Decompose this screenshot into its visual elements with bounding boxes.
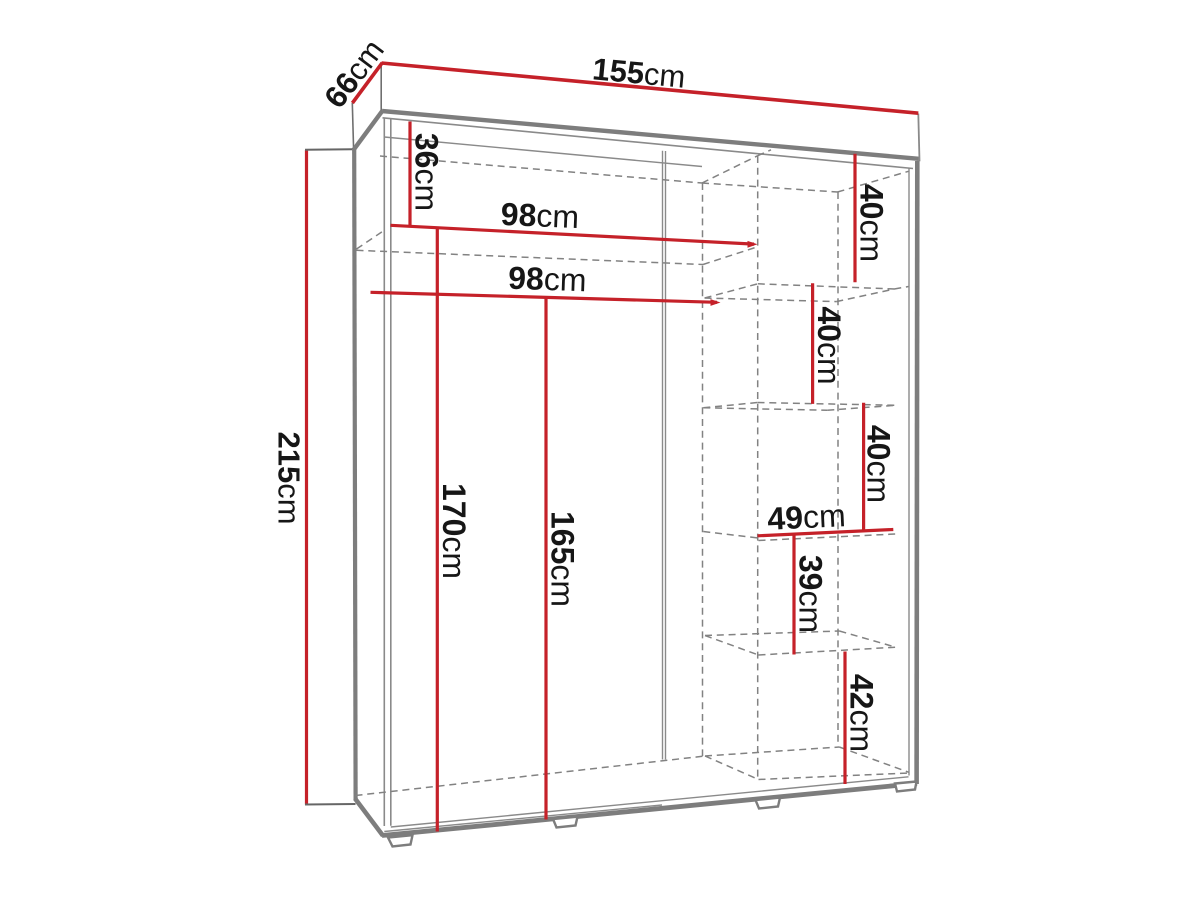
- svg-text:165cm: 165cm: [545, 511, 581, 607]
- svg-text:39cm: 39cm: [793, 555, 829, 633]
- svg-text:98cm: 98cm: [500, 196, 580, 235]
- svg-text:40cm: 40cm: [861, 425, 897, 503]
- svg-text:49cm: 49cm: [767, 497, 847, 537]
- svg-text:40cm: 40cm: [854, 184, 890, 262]
- svg-text:42cm: 42cm: [844, 674, 880, 752]
- svg-text:215cm: 215cm: [272, 431, 307, 524]
- svg-text:98cm: 98cm: [508, 260, 587, 299]
- svg-text:40cm: 40cm: [811, 306, 847, 384]
- svg-text:170cm: 170cm: [436, 483, 472, 579]
- svg-text:36cm: 36cm: [409, 133, 445, 211]
